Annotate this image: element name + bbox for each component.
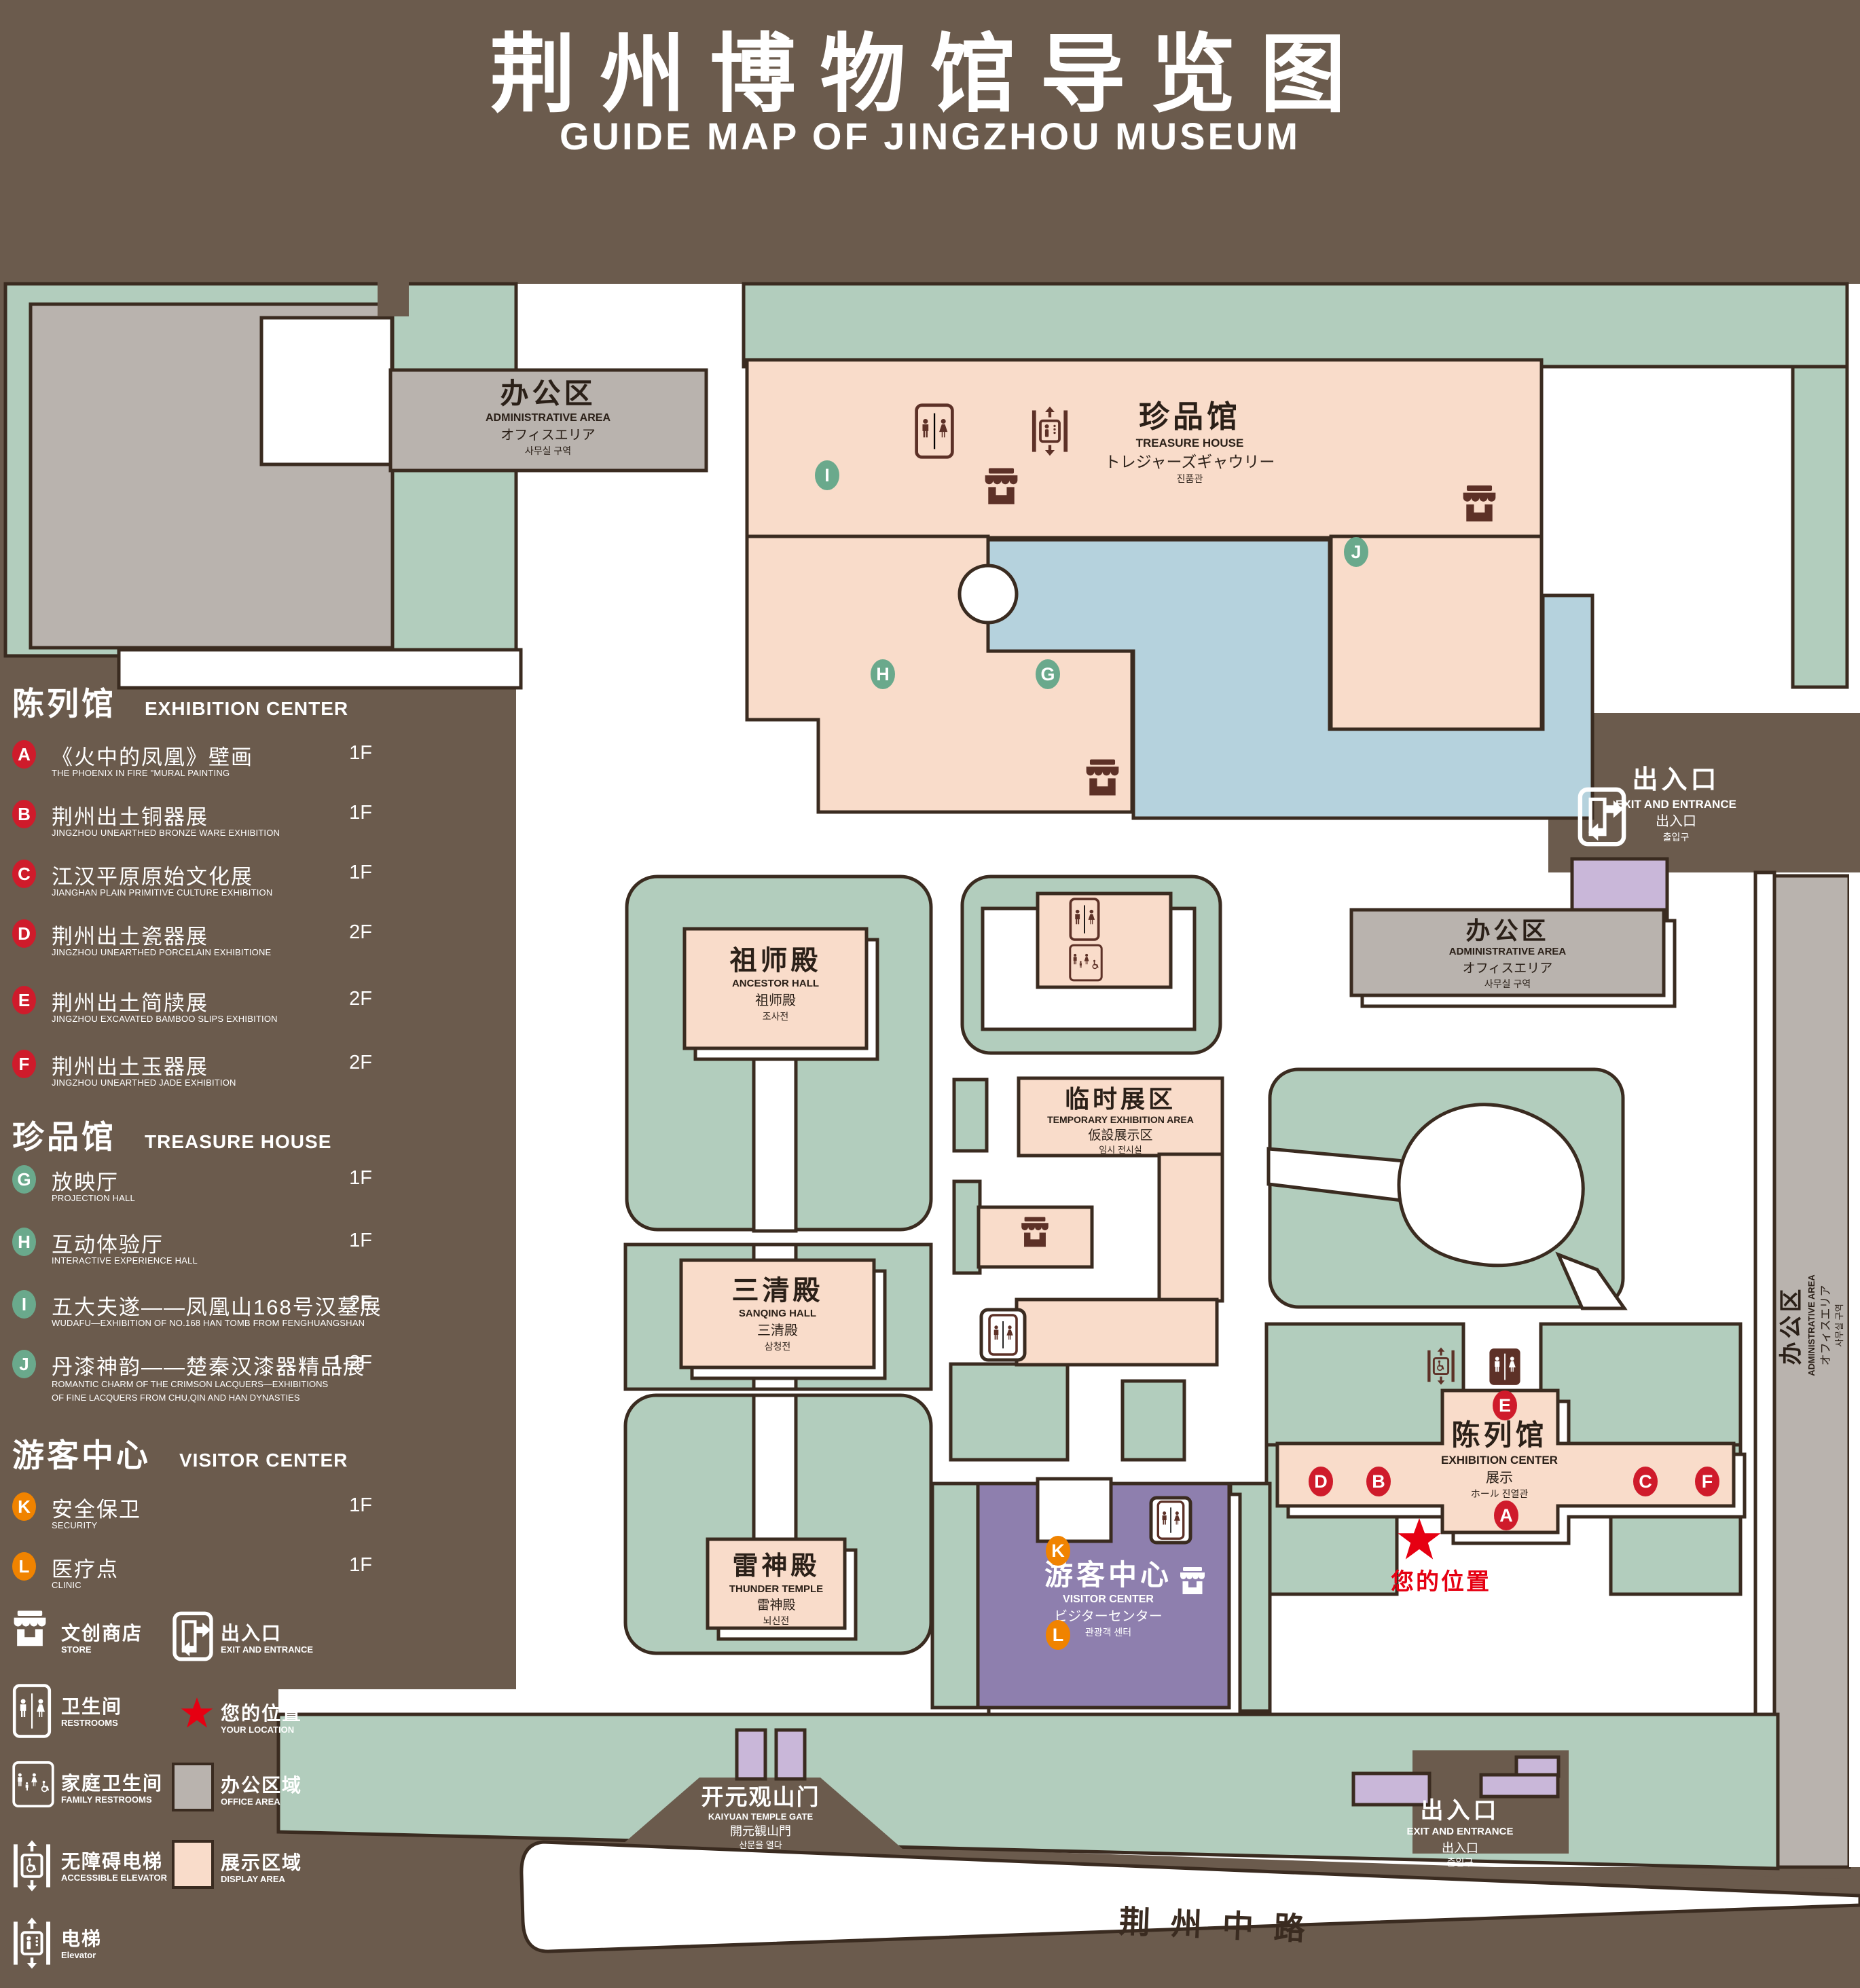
map-marker-b: B	[1366, 1467, 1391, 1496]
restrooms-icon	[12, 1684, 52, 1738]
floor-label: 2F	[270, 1052, 372, 1074]
map-marker-i: I	[815, 460, 839, 490]
marker-badge-b: B	[12, 800, 36, 828]
map-marker-c: C	[1633, 1467, 1658, 1496]
treasure-lawn-band	[744, 284, 1847, 367]
exit-bottom-label: 出入口 EXIT AND ENTRANCE 出入口 출입구	[1407, 1798, 1514, 1869]
floor-label: 1F	[270, 1230, 372, 1252]
store-icon	[12, 1610, 48, 1657]
treasure-house-label: 珍品馆 TREASURE HOUSE トレジャーズギャウリー 진품관	[1105, 399, 1275, 485]
right-top-lawn	[1793, 367, 1847, 687]
restrooms-icon	[1489, 1348, 1520, 1385]
marker-badge-g: G	[12, 1165, 36, 1194]
map-marker-l: L	[1046, 1620, 1070, 1650]
marker-badge-c: C	[12, 860, 36, 888]
map-marker-g: G	[1036, 659, 1060, 689]
legend-section-visitor-center: 游客中心VISITOR CENTER	[12, 1429, 348, 1476]
admin-right-label: 办公区 ADMINISTRATIVE AREA オフィスエリア 사무실 구역	[1449, 917, 1567, 990]
gate-right	[776, 1730, 805, 1779]
marker-badge-a: A	[12, 740, 36, 769]
floor-label: 1F	[270, 1494, 372, 1517]
marker-badge-i: I	[12, 1290, 36, 1319]
map-marker-h: H	[871, 659, 895, 689]
marker-badge-l: L	[12, 1552, 36, 1581]
marker-badge-d: D	[12, 919, 36, 948]
marker-badge-h: H	[12, 1228, 36, 1256]
page-title: 荆州博物馆导览图	[0, 5, 1860, 129]
map-marker-k: K	[1046, 1536, 1070, 1566]
exit-entrance-icon	[172, 1610, 214, 1662]
legend-section-treasure-house: 珍品馆TREASURE HOUSE	[12, 1111, 331, 1158]
map-marker-f: F	[1695, 1467, 1719, 1496]
sanqing-hall-label: 三清殿 SANQING HALL 三清殿 삼청전	[732, 1275, 824, 1352]
floor-label: 2F	[270, 1292, 372, 1314]
floor-label: 1F	[270, 1167, 372, 1190]
floor-label: 1-2F	[270, 1352, 372, 1374]
family-restrooms-icon	[12, 1761, 54, 1808]
map-marker-d: D	[1309, 1467, 1333, 1496]
exit-right-label: 出入口 EXIT AND ENTRANCE 出入口 출입구	[1616, 766, 1736, 843]
legend-section-exhibition-center: 陈列馆EXHIBITION CENTER	[12, 678, 348, 724]
marker-badge-e: E	[12, 986, 36, 1014]
restroom-building	[1038, 894, 1171, 987]
marker-badge-f: F	[12, 1050, 36, 1078]
map-marker-a: A	[1494, 1501, 1518, 1530]
road-label: 荆州中路	[1118, 1897, 1326, 1950]
exhibition-center-label: 陈列馆 EXHIBITION CENTER 展示 ホール 진열관	[1441, 1419, 1558, 1500]
admin-top-label: 办公区 ADMINISTRATIVE AREA オフィスエリア 사무실 구역	[486, 378, 610, 457]
floor-label: 1F	[270, 862, 372, 884]
south-gatehouse-b	[1481, 1775, 1558, 1797]
ancestor-hall-label: 祖师殿 ANCESTOR HALL 祖师殿 조사전	[730, 945, 822, 1023]
floor-label: 2F	[270, 921, 372, 944]
marker-badge-k: K	[12, 1492, 36, 1521]
admin-side-label: 办公区 ADMINISTRATIVE AREA オフィスエリア 사무실 구역	[1779, 1274, 1845, 1376]
marker-badge-j: J	[12, 1350, 36, 1378]
floor-label: 2F	[270, 988, 372, 1010]
admin-top-courtyard	[261, 318, 392, 464]
display-area-swatch	[172, 1840, 214, 1889]
thunder-temple-label: 雷神殿 THUNDER TEMPLE 雷神殿 뇌신전	[729, 1552, 823, 1627]
your-location-label: 您的位置	[1391, 1563, 1491, 1596]
accessible-elevator-icon	[12, 1839, 52, 1893]
temporary-exhibition-label: 临时展区 TEMPORARY EXHIBITION AREA 仮設展示区 임시 …	[1047, 1085, 1194, 1156]
your-location-icon	[180, 1697, 214, 1729]
section-title-zh: 陈列馆	[12, 686, 116, 722]
page-subtitle: GUIDE MAP OF JINGZHOU MUSEUM	[0, 114, 1860, 158]
gate-left	[737, 1730, 765, 1779]
garden-pond-path	[1399, 1105, 1583, 1266]
floor-label: 1F	[270, 742, 372, 765]
elevator-icon	[12, 1916, 52, 1970]
map-marker-j: J	[1344, 537, 1368, 567]
office-area-swatch	[172, 1763, 214, 1811]
section-title-en: EXHIBITION CENTER	[145, 698, 348, 719]
guide-map-sign: .g{fill:#b2cdbd;stroke:#3a2b20;stroke-wi…	[0, 0, 1860, 1988]
kaiyuan-gate-label: 开元观山门 KAIYUAN TEMPLE GATE 開元観山門 산문을 열다	[701, 1784, 820, 1852]
floor-label: 1F	[270, 802, 372, 824]
floor-label: 1F	[270, 1554, 372, 1577]
map-marker-e: E	[1493, 1391, 1517, 1420]
treasure-east-wing	[1331, 536, 1542, 731]
temporary-store-building	[979, 1207, 1092, 1267]
